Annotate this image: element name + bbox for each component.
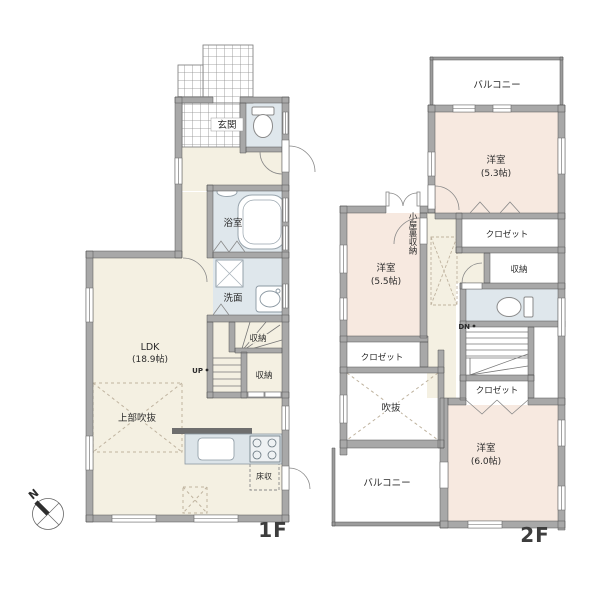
- balcony-south-label: バルコニー: [363, 478, 410, 489]
- storage2f-label: 収納: [510, 264, 527, 275]
- bedroom1-size-label: (5.3帖): [481, 167, 511, 179]
- wash-label: 洗面: [223, 292, 242, 304]
- closet1-label: クロゼット: [486, 229, 529, 240]
- attic-storage-label: 小屋裏収納: [407, 211, 417, 255]
- toilet-icon-1f: [252, 107, 274, 138]
- floor-2-plan: バルコニー 洋室 (5.3帖) クロゼット 収納 小屋裏収納 洋室 (5.5帖)…: [332, 57, 565, 547]
- balcony-north-label: バルコニー: [473, 80, 520, 91]
- bedroom1-label: 洋室: [486, 154, 505, 166]
- stove-icon: [250, 436, 280, 462]
- bedroom3-size-label: (6.0帖): [471, 455, 501, 467]
- ldk-size-label: (18.9帖): [132, 353, 168, 365]
- floor-storage-door-arc: [289, 468, 310, 489]
- void-above-label: 上部吹抜: [118, 412, 157, 424]
- up-label: UP: [192, 367, 203, 375]
- washroom-sink-icon: [256, 286, 284, 312]
- bath-label: 浴室: [223, 217, 242, 229]
- compass-icon: N: [26, 486, 63, 529]
- genkan-label: 玄関: [217, 119, 236, 131]
- dn-label: DN: [458, 323, 470, 331]
- storage-b-door: [265, 392, 281, 397]
- up-dot: [206, 369, 209, 372]
- corridor-floor: [182, 192, 207, 258]
- hall-floor: [182, 147, 282, 191]
- floor-plan-page: 玄関 浴室 洗面 LDK (18.9帖) 収納 収納 上部吹抜 床収 UP 1F: [0, 0, 600, 600]
- entrance-door-arc: [289, 146, 315, 172]
- floor1-label: 1F: [258, 518, 288, 542]
- bedroom2-size-label: (5.5帖): [371, 275, 401, 287]
- toilet-icon-2f: [497, 297, 533, 317]
- storage-b-door: [248, 392, 264, 397]
- compass-north-label: N: [26, 486, 41, 502]
- storage-b-label: 収納: [255, 370, 272, 381]
- void-label: 吹抜: [381, 402, 401, 414]
- closet3-label: クロゼット: [476, 385, 519, 396]
- bedroom3-floor: [448, 405, 558, 521]
- closet2-label: クロゼット: [361, 352, 404, 363]
- kitchen-sink-icon: [198, 438, 234, 460]
- dn-dot: [473, 325, 476, 328]
- attic-door-leaf: [417, 192, 420, 206]
- washing-machine-icon: [216, 260, 243, 287]
- stairs-2f: [466, 332, 528, 375]
- attic-door-leaf: [386, 192, 389, 206]
- floor2-label: 2F: [520, 523, 550, 547]
- floor-storage-label: 床収: [256, 471, 272, 481]
- floor-plan-canvas: 玄関 浴室 洗面 LDK (18.9帖) 収納 収納 上部吹抜 床収 UP 1F: [0, 0, 600, 600]
- bedroom3-label: 洋室: [476, 442, 495, 454]
- floor-1-plan: 玄関 浴室 洗面 LDK (18.9帖) 収納 収納 上部吹抜 床収 UP 1F: [86, 45, 315, 542]
- ldk-label: LDK: [141, 342, 161, 353]
- hall2f-floor: [456, 253, 484, 283]
- bedroom2-label: 洋室: [376, 262, 395, 274]
- attic-door-arcs: [389, 193, 417, 206]
- storage-a-label: 収納: [249, 333, 266, 344]
